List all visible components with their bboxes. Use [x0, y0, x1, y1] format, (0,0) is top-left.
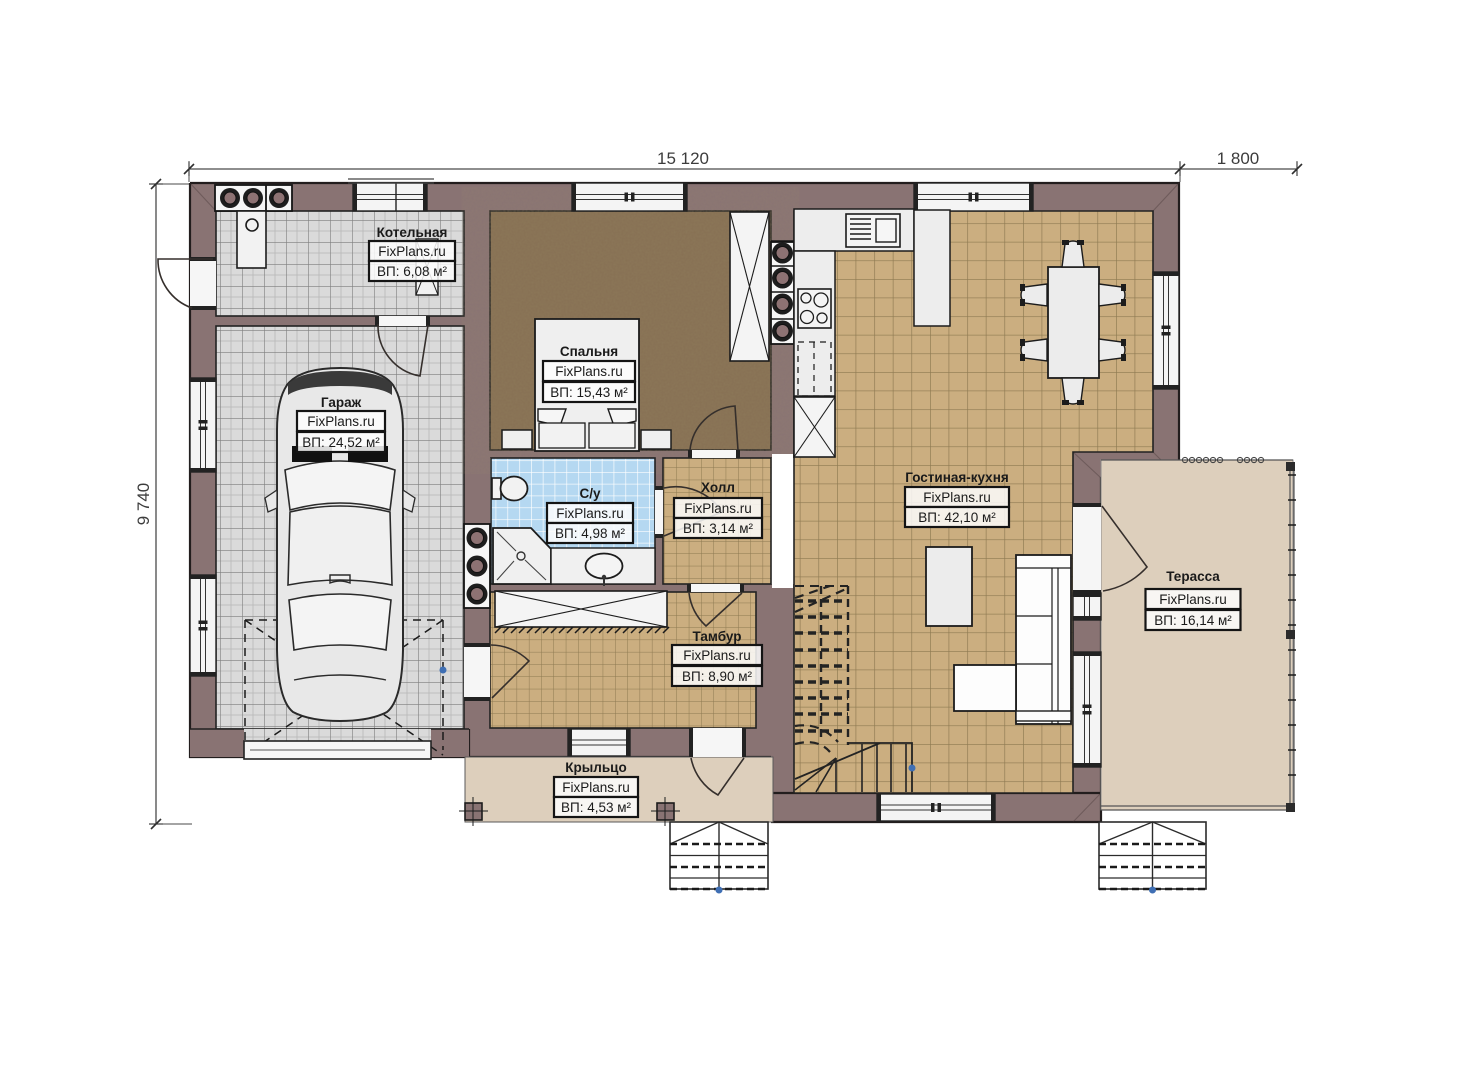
- svg-text:FixPlans.ru: FixPlans.ru: [684, 501, 752, 516]
- svg-text:FixPlans.ru: FixPlans.ru: [555, 364, 623, 379]
- svg-text:FixPlans.ru: FixPlans.ru: [378, 244, 446, 259]
- svg-text:С/у: С/у: [579, 486, 601, 501]
- svg-text:15 120: 15 120: [657, 149, 709, 168]
- svg-text:Тамбур: Тамбур: [693, 629, 742, 644]
- svg-text:ВП: 8,90 м²: ВП: 8,90 м²: [682, 669, 753, 684]
- svg-text:ВП: 3,14 м²: ВП: 3,14 м²: [683, 521, 754, 536]
- svg-text:ВП: 4,98 м²: ВП: 4,98 м²: [555, 526, 626, 541]
- svg-text:FixPlans.ru: FixPlans.ru: [307, 414, 375, 429]
- svg-text:FixPlans.ru: FixPlans.ru: [562, 780, 630, 795]
- svg-text:FixPlans.ru: FixPlans.ru: [556, 506, 624, 521]
- svg-text:9 740: 9 740: [134, 483, 153, 526]
- svg-text:ВП: 42,10 м²: ВП: 42,10 м²: [918, 510, 996, 525]
- svg-text:ВП: 4,53 м²: ВП: 4,53 м²: [561, 800, 632, 815]
- svg-text:ВП: 24,52 м²: ВП: 24,52 м²: [302, 435, 380, 450]
- svg-text:Спальня: Спальня: [560, 344, 618, 359]
- svg-text:Терасса: Терасса: [1166, 569, 1220, 584]
- svg-text:Холл: Холл: [701, 480, 735, 495]
- svg-text:1 800: 1 800: [1217, 149, 1260, 168]
- svg-text:ВП: 15,43 м²: ВП: 15,43 м²: [550, 385, 628, 400]
- svg-text:ВП: 16,14 м²: ВП: 16,14 м²: [1154, 613, 1232, 628]
- svg-text:Крыльцо: Крыльцо: [565, 760, 626, 775]
- svg-text:FixPlans.ru: FixPlans.ru: [683, 648, 751, 663]
- svg-text:Гараж: Гараж: [321, 395, 362, 410]
- svg-text:FixPlans.ru: FixPlans.ru: [923, 490, 991, 505]
- svg-text:FixPlans.ru: FixPlans.ru: [1159, 592, 1227, 607]
- svg-text:ВП: 6,08 м²: ВП: 6,08 м²: [377, 264, 448, 279]
- svg-text:Гостиная-кухня: Гостиная-кухня: [905, 470, 1008, 485]
- svg-text:Котельная: Котельная: [377, 225, 448, 240]
